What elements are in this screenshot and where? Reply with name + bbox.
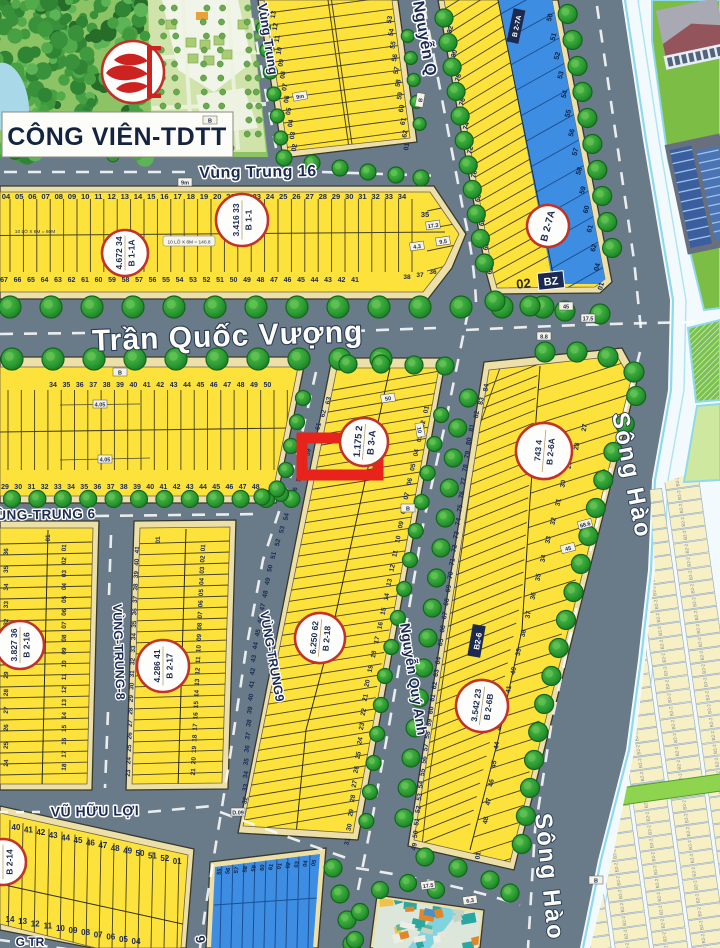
svg-text:G TR: G TR bbox=[16, 935, 45, 948]
svg-text:9m: 9m bbox=[181, 180, 189, 186]
svg-text:17: 17 bbox=[192, 723, 200, 731]
svg-text:35: 35 bbox=[421, 210, 429, 219]
svg-text:04: 04 bbox=[287, 119, 295, 128]
svg-text:15: 15 bbox=[61, 724, 69, 732]
svg-text:33: 33 bbox=[130, 645, 138, 653]
svg-text:25: 25 bbox=[3, 741, 11, 749]
svg-text:33: 33 bbox=[54, 484, 62, 491]
svg-text:27: 27 bbox=[305, 192, 313, 201]
svg-text:36: 36 bbox=[3, 548, 11, 556]
svg-text:24: 24 bbox=[125, 756, 133, 764]
svg-text:47: 47 bbox=[485, 797, 493, 806]
svg-text:10 LÔ X 6M = 60M: 10 LÔ X 6M = 60M bbox=[15, 228, 55, 235]
svg-text:47: 47 bbox=[223, 382, 231, 389]
svg-text:3.827 36: 3.827 36 bbox=[9, 628, 19, 661]
svg-text:75: 75 bbox=[456, 504, 464, 513]
svg-text:04: 04 bbox=[198, 577, 206, 585]
svg-text:CÔNG VIÊN-TDTT: CÔNG VIÊN-TDTT bbox=[7, 121, 227, 151]
svg-text:38: 38 bbox=[132, 583, 140, 591]
svg-text:52: 52 bbox=[160, 854, 169, 863]
svg-text:36: 36 bbox=[131, 608, 139, 616]
svg-text:02: 02 bbox=[291, 143, 299, 152]
svg-text:57: 57 bbox=[393, 66, 401, 75]
svg-text:14: 14 bbox=[6, 915, 15, 924]
svg-text:72: 72 bbox=[451, 544, 459, 553]
svg-text:83: 83 bbox=[478, 397, 486, 406]
svg-text:34: 34 bbox=[3, 583, 11, 591]
svg-text:24: 24 bbox=[266, 192, 275, 201]
svg-text:74: 74 bbox=[455, 517, 463, 526]
svg-text:53: 53 bbox=[416, 793, 424, 802]
svg-text:32: 32 bbox=[129, 657, 137, 665]
svg-text:54: 54 bbox=[417, 780, 425, 789]
svg-text:03: 03 bbox=[61, 569, 69, 577]
svg-text:49: 49 bbox=[243, 277, 251, 284]
svg-text:65: 65 bbox=[27, 277, 35, 284]
svg-text:68: 68 bbox=[443, 598, 451, 607]
svg-text:01: 01 bbox=[61, 544, 69, 552]
svg-text:14: 14 bbox=[61, 711, 69, 719]
svg-text:11: 11 bbox=[195, 656, 203, 664]
svg-text:18: 18 bbox=[61, 763, 69, 771]
svg-text:45: 45 bbox=[212, 484, 220, 491]
svg-text:60: 60 bbox=[95, 277, 103, 284]
svg-text:37: 37 bbox=[132, 595, 140, 603]
svg-text:05: 05 bbox=[119, 935, 128, 944]
svg-text:05: 05 bbox=[285, 107, 293, 116]
svg-text:33: 33 bbox=[385, 192, 393, 201]
svg-text:76: 76 bbox=[458, 490, 466, 499]
svg-text:4.05: 4.05 bbox=[95, 402, 106, 408]
svg-text:6.3: 6.3 bbox=[466, 898, 474, 905]
svg-text:40: 40 bbox=[12, 823, 21, 832]
svg-text:B: B bbox=[118, 370, 122, 376]
svg-text:49: 49 bbox=[411, 842, 419, 851]
svg-text:38: 38 bbox=[103, 382, 111, 389]
svg-text:45: 45 bbox=[297, 277, 305, 284]
svg-text:51: 51 bbox=[413, 817, 421, 826]
svg-text:41: 41 bbox=[351, 277, 359, 284]
svg-text:VŨ HỮU LỢI: VŨ HỮU LỢI bbox=[51, 801, 140, 820]
svg-text:04: 04 bbox=[61, 582, 69, 590]
svg-text:01: 01 bbox=[474, 851, 482, 860]
svg-text:01: 01 bbox=[155, 536, 162, 544]
svg-text:62: 62 bbox=[431, 681, 439, 690]
svg-text:05: 05 bbox=[15, 192, 24, 201]
svg-text:08: 08 bbox=[61, 634, 69, 642]
svg-text:46: 46 bbox=[86, 839, 95, 848]
svg-text:63: 63 bbox=[433, 669, 441, 678]
svg-text:43: 43 bbox=[49, 831, 58, 840]
svg-text:12: 12 bbox=[194, 667, 202, 675]
svg-text:36: 36 bbox=[530, 591, 538, 600]
svg-text:03: 03 bbox=[289, 131, 297, 140]
svg-text:35: 35 bbox=[131, 620, 139, 628]
svg-text:08: 08 bbox=[196, 622, 204, 630]
svg-text:35: 35 bbox=[3, 565, 11, 573]
svg-text:51: 51 bbox=[148, 852, 157, 861]
svg-text:44: 44 bbox=[199, 484, 207, 491]
svg-text:06: 06 bbox=[197, 600, 205, 608]
svg-text:13: 13 bbox=[194, 678, 202, 686]
svg-text:42: 42 bbox=[36, 828, 45, 837]
svg-text:42: 42 bbox=[156, 382, 164, 389]
svg-text:02: 02 bbox=[61, 556, 69, 564]
svg-text:41: 41 bbox=[143, 382, 151, 389]
svg-text:12: 12 bbox=[31, 919, 40, 928]
svg-text:70: 70 bbox=[447, 571, 455, 580]
svg-text:4.05: 4.05 bbox=[100, 457, 111, 463]
svg-text:4.3: 4.3 bbox=[413, 244, 421, 251]
svg-text:43: 43 bbox=[170, 382, 178, 389]
svg-text:10: 10 bbox=[81, 192, 89, 201]
svg-text:31: 31 bbox=[28, 484, 36, 491]
svg-text:30: 30 bbox=[14, 484, 22, 491]
svg-text:61: 61 bbox=[429, 693, 437, 702]
svg-text:28: 28 bbox=[573, 442, 581, 451]
svg-text:43: 43 bbox=[324, 277, 332, 284]
svg-text:01: 01 bbox=[45, 534, 52, 542]
svg-text:02: 02 bbox=[199, 555, 207, 563]
svg-text:44: 44 bbox=[493, 741, 501, 750]
svg-text:10: 10 bbox=[56, 924, 65, 933]
svg-text:61: 61 bbox=[81, 277, 89, 284]
svg-text:37: 37 bbox=[89, 382, 97, 389]
svg-text:13: 13 bbox=[18, 917, 27, 926]
svg-text:64: 64 bbox=[435, 656, 443, 665]
svg-text:31: 31 bbox=[358, 192, 367, 201]
svg-text:30: 30 bbox=[559, 479, 567, 488]
svg-text:62: 62 bbox=[68, 277, 76, 284]
svg-text:48: 48 bbox=[482, 816, 490, 825]
svg-text:11: 11 bbox=[94, 192, 103, 201]
svg-text:49: 49 bbox=[123, 846, 132, 855]
svg-text:13: 13 bbox=[121, 192, 129, 201]
svg-text:8.8: 8.8 bbox=[540, 334, 548, 340]
svg-text:29: 29 bbox=[128, 694, 136, 702]
svg-text:60: 60 bbox=[427, 706, 435, 715]
svg-text:50: 50 bbox=[412, 830, 420, 839]
svg-text:59: 59 bbox=[108, 277, 116, 284]
svg-text:57: 57 bbox=[135, 277, 143, 284]
svg-text:09: 09 bbox=[196, 633, 204, 641]
svg-text:50: 50 bbox=[385, 396, 392, 403]
svg-text:45: 45 bbox=[74, 836, 83, 845]
svg-text:37: 37 bbox=[525, 610, 533, 619]
svg-text:73: 73 bbox=[453, 531, 461, 540]
svg-text:57: 57 bbox=[234, 867, 241, 874]
svg-text:31: 31 bbox=[129, 670, 137, 678]
svg-text:4.286 41: 4.286 41 bbox=[152, 649, 162, 682]
svg-text:06: 06 bbox=[61, 608, 69, 616]
svg-text:56: 56 bbox=[391, 53, 399, 62]
svg-text:55: 55 bbox=[389, 41, 397, 50]
svg-text:B 3-A: B 3-A bbox=[365, 430, 378, 456]
svg-text:28: 28 bbox=[319, 192, 327, 201]
svg-text:53: 53 bbox=[189, 277, 197, 284]
svg-text:38: 38 bbox=[120, 484, 128, 491]
svg-text:38: 38 bbox=[403, 274, 411, 281]
svg-text:20: 20 bbox=[213, 192, 221, 201]
svg-text:15: 15 bbox=[147, 192, 156, 201]
svg-text:60: 60 bbox=[260, 864, 267, 871]
svg-text:B: B bbox=[208, 118, 212, 124]
svg-text:58: 58 bbox=[395, 79, 403, 88]
svg-text:25: 25 bbox=[279, 192, 288, 201]
svg-text:09: 09 bbox=[69, 926, 78, 935]
svg-text:01: 01 bbox=[200, 544, 208, 552]
svg-text:19: 19 bbox=[200, 192, 208, 201]
svg-text:40: 40 bbox=[146, 484, 154, 491]
svg-text:37: 37 bbox=[416, 272, 424, 279]
svg-text:36: 36 bbox=[0, 857, 2, 867]
svg-text:32: 32 bbox=[371, 192, 379, 201]
svg-text:60: 60 bbox=[398, 104, 406, 113]
svg-text:29: 29 bbox=[332, 192, 340, 201]
svg-text:23: 23 bbox=[125, 769, 133, 777]
svg-text:48: 48 bbox=[237, 382, 245, 389]
svg-text:38: 38 bbox=[520, 629, 528, 638]
svg-text:52: 52 bbox=[203, 277, 211, 284]
svg-text:25: 25 bbox=[126, 744, 134, 752]
svg-text:11: 11 bbox=[61, 673, 69, 681]
svg-text:42: 42 bbox=[338, 277, 346, 284]
svg-text:07: 07 bbox=[281, 83, 289, 92]
svg-text:04: 04 bbox=[132, 937, 141, 946]
svg-text:40: 40 bbox=[133, 558, 141, 566]
svg-text:49: 49 bbox=[250, 382, 258, 389]
svg-text:14: 14 bbox=[193, 689, 201, 697]
svg-text:05: 05 bbox=[198, 588, 206, 596]
svg-text:71: 71 bbox=[449, 557, 457, 566]
svg-text:18: 18 bbox=[187, 192, 195, 201]
svg-text:11: 11 bbox=[44, 922, 53, 931]
svg-text:32: 32 bbox=[550, 517, 558, 526]
svg-text:18: 18 bbox=[191, 734, 199, 742]
svg-text:41: 41 bbox=[24, 826, 33, 835]
svg-text:02: 02 bbox=[516, 275, 532, 291]
svg-text:34: 34 bbox=[398, 192, 407, 201]
svg-text:66: 66 bbox=[439, 624, 447, 633]
svg-text:42: 42 bbox=[173, 484, 181, 491]
svg-text:06: 06 bbox=[283, 95, 291, 104]
svg-text:36: 36 bbox=[94, 484, 102, 491]
svg-text:07: 07 bbox=[94, 930, 103, 939]
svg-text:34: 34 bbox=[49, 382, 57, 389]
svg-text:44: 44 bbox=[311, 277, 319, 284]
svg-text:80: 80 bbox=[465, 437, 473, 446]
svg-text:63: 63 bbox=[54, 277, 62, 284]
svg-text:45: 45 bbox=[490, 760, 498, 769]
svg-text:33: 33 bbox=[545, 535, 553, 544]
svg-text:15: 15 bbox=[193, 700, 201, 708]
svg-text:54: 54 bbox=[388, 28, 396, 37]
svg-text:30: 30 bbox=[345, 192, 353, 201]
svg-text:36: 36 bbox=[429, 269, 437, 276]
svg-text:46: 46 bbox=[226, 484, 234, 491]
svg-text:27: 27 bbox=[581, 423, 589, 432]
svg-text:B: B bbox=[594, 878, 598, 884]
svg-text:28: 28 bbox=[127, 707, 135, 715]
svg-text:06: 06 bbox=[28, 192, 36, 201]
svg-text:45: 45 bbox=[563, 304, 569, 310]
svg-text:12: 12 bbox=[107, 192, 115, 201]
svg-text:13: 13 bbox=[61, 698, 69, 706]
svg-text:35: 35 bbox=[535, 573, 543, 582]
svg-text:B 2-14: B 2-14 bbox=[5, 849, 15, 875]
svg-text:4.672 34: 4.672 34 bbox=[114, 236, 124, 269]
svg-text:01: 01 bbox=[403, 142, 411, 151]
svg-text:03: 03 bbox=[199, 566, 207, 574]
svg-text:54: 54 bbox=[176, 277, 184, 284]
svg-text:27: 27 bbox=[127, 719, 135, 727]
svg-text:55: 55 bbox=[162, 277, 170, 284]
svg-text:19: 19 bbox=[191, 745, 199, 753]
svg-text:62: 62 bbox=[401, 129, 409, 138]
svg-text:39: 39 bbox=[133, 570, 141, 578]
svg-text:743 4: 743 4 bbox=[532, 439, 544, 461]
svg-text:39: 39 bbox=[116, 382, 124, 389]
svg-text:28: 28 bbox=[3, 688, 11, 696]
svg-text:D.09: D.09 bbox=[232, 810, 244, 816]
svg-text:B 2-17: B 2-17 bbox=[165, 653, 175, 679]
svg-text:01: 01 bbox=[173, 857, 182, 866]
svg-text:24: 24 bbox=[3, 759, 11, 767]
svg-text:29: 29 bbox=[3, 671, 11, 679]
svg-text:56: 56 bbox=[149, 277, 157, 284]
svg-text:16: 16 bbox=[192, 712, 200, 720]
svg-text:09: 09 bbox=[68, 192, 76, 201]
svg-text:07: 07 bbox=[61, 621, 69, 629]
svg-text:21: 21 bbox=[190, 768, 198, 776]
svg-text:61: 61 bbox=[400, 117, 408, 126]
svg-text:02: 02 bbox=[285, 862, 292, 869]
svg-text:35: 35 bbox=[80, 484, 88, 491]
svg-text:39: 39 bbox=[515, 648, 523, 657]
svg-text:46: 46 bbox=[284, 277, 292, 284]
svg-text:33: 33 bbox=[3, 600, 11, 608]
svg-text:77: 77 bbox=[460, 477, 468, 486]
svg-text:40: 40 bbox=[130, 382, 138, 389]
svg-text:81: 81 bbox=[468, 423, 476, 432]
svg-text:12: 12 bbox=[61, 685, 69, 693]
svg-text:69: 69 bbox=[445, 584, 453, 593]
svg-text:67: 67 bbox=[0, 277, 8, 284]
svg-text:10 LÔ X 8M = 140.8: 10 LÔ X 8M = 140.8 bbox=[167, 239, 210, 246]
svg-text:45: 45 bbox=[197, 382, 205, 389]
svg-text:79: 79 bbox=[464, 450, 472, 459]
svg-text:34: 34 bbox=[130, 632, 138, 640]
svg-text:46: 46 bbox=[210, 382, 218, 389]
svg-text:06: 06 bbox=[106, 933, 115, 942]
svg-text:08: 08 bbox=[55, 192, 63, 201]
svg-text:65: 65 bbox=[437, 638, 445, 647]
svg-text:B 1-1A: B 1-1A bbox=[127, 240, 137, 267]
svg-text:55: 55 bbox=[419, 768, 427, 777]
svg-text:57: 57 bbox=[422, 743, 430, 752]
svg-text:10: 10 bbox=[195, 644, 203, 652]
svg-text:10: 10 bbox=[61, 660, 69, 668]
svg-text:07: 07 bbox=[41, 192, 49, 201]
svg-text:10: 10 bbox=[415, 427, 422, 434]
svg-text:08: 08 bbox=[81, 928, 90, 937]
svg-text:59: 59 bbox=[396, 91, 404, 100]
svg-text:BZ: BZ bbox=[543, 275, 559, 288]
svg-text:52: 52 bbox=[415, 805, 423, 814]
svg-text:26: 26 bbox=[292, 192, 300, 201]
svg-text:34: 34 bbox=[540, 554, 548, 563]
svg-text:47: 47 bbox=[270, 277, 278, 284]
svg-text:30: 30 bbox=[128, 682, 136, 690]
svg-text:16: 16 bbox=[61, 737, 69, 745]
svg-text:53: 53 bbox=[386, 15, 394, 24]
svg-text:56: 56 bbox=[421, 755, 429, 764]
svg-text:41: 41 bbox=[134, 546, 142, 554]
svg-text:58: 58 bbox=[122, 277, 130, 284]
svg-text:50: 50 bbox=[230, 277, 238, 284]
svg-text:36: 36 bbox=[76, 382, 84, 389]
svg-text:51: 51 bbox=[216, 277, 224, 284]
svg-text:48: 48 bbox=[257, 277, 265, 284]
svg-text:ÙNG-TRUNG 6: ÙNG-TRUNG 6 bbox=[0, 506, 96, 523]
svg-text:07: 07 bbox=[197, 611, 205, 619]
svg-text:32: 32 bbox=[41, 484, 49, 491]
svg-text:44: 44 bbox=[183, 382, 191, 389]
svg-text:82: 82 bbox=[473, 410, 481, 419]
svg-text:35: 35 bbox=[63, 382, 71, 389]
svg-text:46: 46 bbox=[488, 778, 496, 787]
svg-text:26: 26 bbox=[3, 724, 11, 732]
svg-text:26: 26 bbox=[126, 732, 134, 740]
svg-text:84: 84 bbox=[482, 383, 490, 392]
svg-text:B 1-1: B 1-1 bbox=[244, 209, 254, 230]
svg-text:40: 40 bbox=[510, 666, 518, 675]
svg-text:B 2-16: B 2-16 bbox=[22, 632, 32, 658]
svg-text:17: 17 bbox=[173, 192, 181, 201]
svg-text:B: B bbox=[406, 506, 410, 512]
svg-text:67: 67 bbox=[441, 611, 449, 620]
svg-text:09: 09 bbox=[61, 647, 69, 655]
svg-text:16: 16 bbox=[160, 192, 168, 201]
svg-text:78: 78 bbox=[462, 464, 470, 473]
svg-text:Vùng Trung 16: Vùng Trung 16 bbox=[199, 163, 317, 182]
svg-text:9.5: 9.5 bbox=[439, 239, 447, 246]
svg-text:3.416 33: 3.416 33 bbox=[231, 203, 241, 236]
svg-text:44: 44 bbox=[61, 833, 70, 842]
svg-text:64: 64 bbox=[41, 277, 49, 284]
svg-text:34: 34 bbox=[67, 484, 75, 491]
svg-text:04: 04 bbox=[2, 192, 11, 201]
svg-text:20: 20 bbox=[190, 756, 198, 764]
svg-text:50: 50 bbox=[136, 849, 145, 858]
svg-text:17.5: 17.5 bbox=[583, 316, 594, 322]
svg-text:66: 66 bbox=[14, 277, 22, 284]
svg-text:48: 48 bbox=[111, 844, 120, 853]
svg-text:41: 41 bbox=[505, 685, 513, 694]
svg-text:17: 17 bbox=[61, 750, 69, 758]
svg-text:29: 29 bbox=[1, 484, 9, 491]
svg-text:47: 47 bbox=[98, 841, 107, 850]
svg-text:50: 50 bbox=[264, 382, 272, 389]
svg-text:14: 14 bbox=[134, 192, 143, 201]
svg-text:05: 05 bbox=[61, 595, 69, 603]
svg-text:31: 31 bbox=[555, 498, 563, 507]
svg-text:27: 27 bbox=[3, 706, 11, 714]
